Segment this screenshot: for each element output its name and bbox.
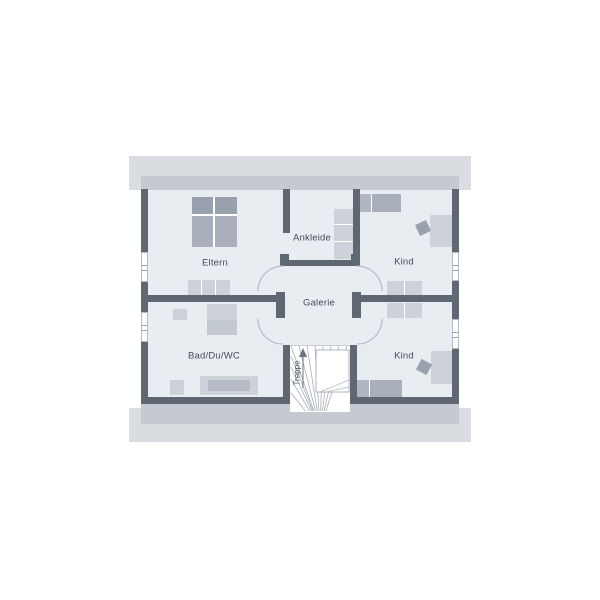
bed-mattress-left — [192, 216, 213, 247]
wall-divider-right — [357, 295, 459, 302]
child1-bed — [360, 194, 401, 212]
child1-dresser — [387, 281, 422, 296]
bed-pillow — [357, 380, 369, 397]
attic-band-top — [141, 176, 459, 190]
room-label-eltern: Eltern — [202, 258, 228, 269]
room-label-bad: Bad/Du/WC — [188, 351, 240, 362]
window-right-top — [452, 252, 459, 281]
bed-pillow-left — [192, 197, 213, 214]
room-label-kind-bottom: Kind — [394, 351, 414, 362]
wall-stair-right — [350, 345, 357, 404]
window-glazing — [453, 265, 458, 271]
child2-dresser — [387, 303, 422, 318]
window-glazing — [453, 332, 458, 338]
floor-plan-canvas: Eltern Ankleide Kind Galerie Bad/Du/WC K… — [0, 0, 600, 600]
bathtub — [200, 376, 258, 395]
parents-bed — [192, 197, 237, 247]
window-right-bottom — [452, 319, 459, 349]
bathroom-toilet — [170, 380, 184, 395]
wall-cap-mid-left — [276, 292, 285, 318]
bathroom-shower — [207, 304, 237, 320]
bathroom-sink — [173, 309, 187, 320]
room-label-ankleide: Ankleide — [293, 233, 331, 244]
bed-pillow — [360, 194, 371, 212]
room-label-treppe: Treppe — [293, 360, 302, 385]
window-left-bottom — [141, 312, 148, 342]
wall-divider-left — [141, 295, 282, 302]
wall-galerie-top — [283, 260, 357, 266]
bed-mattress-right — [215, 216, 237, 247]
wall-exterior-bottom-left — [141, 397, 290, 404]
child2-desk — [431, 351, 452, 384]
wall-ankleide-left — [283, 189, 290, 233]
child1-desk — [430, 215, 452, 247]
bathroom-vanity — [207, 320, 237, 335]
room-label-kind-top: Kind — [394, 257, 414, 268]
bed-pillow-right — [215, 197, 237, 214]
window-glazing — [142, 265, 147, 271]
wall-cap-top-right — [351, 254, 360, 266]
window-glazing — [142, 325, 147, 331]
bathtub-basin — [208, 380, 250, 391]
window-left-top — [141, 252, 148, 282]
wall-stair-left — [283, 345, 290, 404]
child2-bed — [357, 380, 402, 397]
wall-exterior-bottom-right — [350, 397, 459, 404]
room-label-galerie: Galerie — [303, 298, 335, 309]
parents-sideboard — [188, 280, 230, 295]
wall-cap-top-left — [280, 254, 289, 266]
wardrobe — [334, 209, 353, 259]
bed-mattress — [370, 380, 402, 397]
bed-mattress — [372, 194, 401, 212]
wall-cap-mid-right — [352, 292, 361, 318]
